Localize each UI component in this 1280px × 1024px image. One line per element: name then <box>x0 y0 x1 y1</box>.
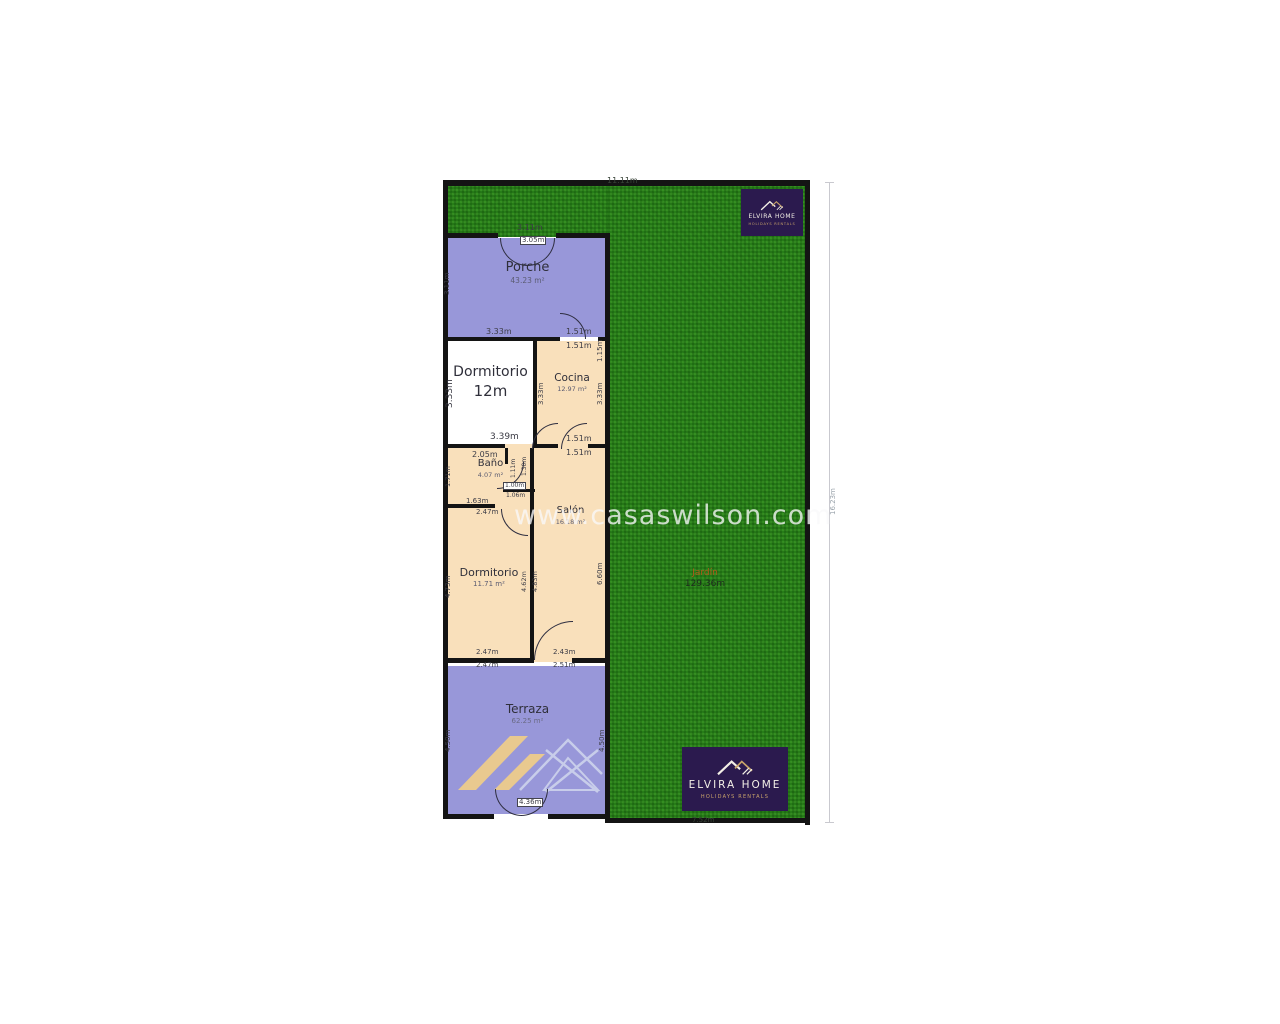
dim-top-width: 11.11m <box>607 177 638 185</box>
dim-salon-right: 6.60m <box>597 563 604 585</box>
dormitorio1-size: 12m <box>448 382 533 401</box>
dim-wall-mid-b: 4.83m <box>532 571 539 592</box>
dim-terraza-door: 4.36m <box>517 798 543 807</box>
dim-bano-inner-v1: 1.11m <box>511 459 517 478</box>
dormitorio2-area: 11.71 m² <box>448 580 530 589</box>
dim-dorm2-top: 2.47m <box>476 509 498 516</box>
measure-tick-bottom <box>825 822 834 823</box>
dim-cocina-top: 1.51m <box>566 342 592 350</box>
elvira-home-logo-bottom: ELVIRA HOME HOLIDAYS RENTALS <box>682 747 788 811</box>
dim-garden-bottom: 7.52m <box>692 817 714 824</box>
dim-terraza-right: 4.50m <box>599 730 606 752</box>
label-dormitorio1: Dormitorio 12m <box>448 364 533 400</box>
wall <box>443 233 498 238</box>
dim-dorm1-bottom: 3.39m <box>490 433 519 442</box>
wall <box>556 233 610 238</box>
dim-dorm2-bottom-b: 2.47m <box>476 662 498 669</box>
dim-bano-top: 2.05m <box>472 451 498 459</box>
porche-area: 43.23 m² <box>448 276 607 285</box>
terraza-name: Terraza <box>448 702 607 717</box>
dim-porche-left: 3.11m <box>444 273 451 295</box>
dim-bano-inner-h2: 1.06m <box>506 493 525 499</box>
roof-icon <box>714 759 756 776</box>
label-terraza: Terraza 62.25 m² <box>448 702 607 726</box>
measure-tick-top <box>825 182 834 183</box>
elvira-home-logo-top: ELVIRA HOME HOLIDAYS RENTALS <box>741 189 803 236</box>
site-watermark: www.casaswilson.com <box>514 500 832 531</box>
wall <box>530 448 534 662</box>
label-dormitorio2: Dormitorio 11.71 m² <box>448 566 530 589</box>
dim-bano-inner-v2: 1.30m <box>522 457 528 476</box>
wall <box>548 814 610 819</box>
dormitorio2-name: Dormitorio <box>448 566 530 580</box>
jardin-name: Jardín <box>660 568 750 579</box>
wall <box>443 444 505 448</box>
dim-cocina-left: 3.33m <box>538 383 545 405</box>
floorplan-canvas: Porche 43.23 m² Dormitorio 12m Cocina 12… <box>0 0 1280 1024</box>
dim-salon-bottom-b: 2.51m <box>553 662 575 669</box>
dormitorio1-name: Dormitorio <box>448 364 533 382</box>
dim-cocina-right: 3.33m <box>597 383 604 405</box>
label-jardin: Jardín 129.36m <box>660 568 750 591</box>
wall <box>572 658 610 663</box>
dim-bano-left: 1.71m <box>445 466 452 487</box>
jardin-area: 129.36m <box>660 579 750 590</box>
dim-porche-bottom-left: 3.33m <box>486 328 512 336</box>
dim-cocina-bottom-b: 1.51m <box>566 449 592 457</box>
dim-dorm2-left: 4.73m <box>445 576 452 598</box>
roof-icon <box>759 200 785 211</box>
brand-subtitle: HOLIDAYS RENTALS <box>748 222 795 226</box>
brand-name: ELVIRA HOME <box>689 779 782 791</box>
terraza-area: 62.25 m² <box>448 717 607 726</box>
dim-bano-bottom: 1.63m <box>466 498 488 505</box>
dim-salon-bottom-a: 2.43m <box>553 649 575 656</box>
brand-name: ELVIRA HOME <box>748 213 795 220</box>
dim-porche-bottom-right: 1.51m <box>566 328 592 336</box>
label-porche: Porche 43.23 m² <box>448 260 607 286</box>
dim-dorm2-bottom-a: 2.47m <box>476 649 498 656</box>
porche-name: Porche <box>448 260 607 276</box>
dim-porche-right: 1.15m <box>597 340 604 362</box>
dim-porche-door: 3.05m <box>520 236 546 245</box>
dim-bano-inner-h1: 1.00m <box>503 482 526 490</box>
dim-cocina-bottom-a: 1.51m <box>566 435 592 443</box>
dim-porche-top: 3.11m <box>517 224 543 232</box>
dim-wall-mid-a: 4.62m <box>521 571 528 592</box>
wall <box>443 814 494 819</box>
wall <box>443 337 560 341</box>
dim-terraza-left: 4.50m <box>445 730 452 752</box>
dim-dorm1-left: 3.33m <box>446 379 455 408</box>
brand-subtitle: HOLIDAYS RENTALS <box>701 794 769 800</box>
